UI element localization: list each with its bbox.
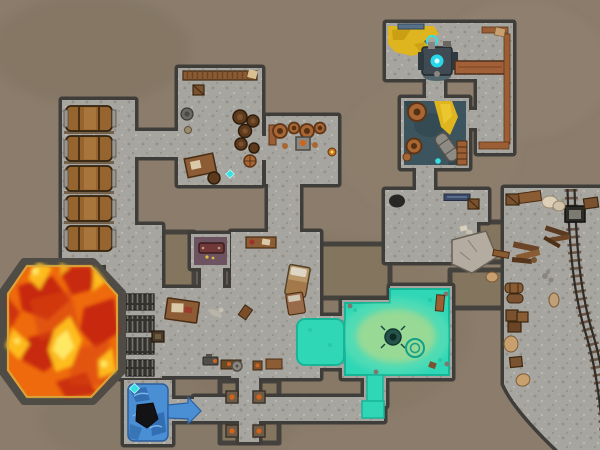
circle <box>237 114 243 120</box>
dungeon-battle-map <box>0 0 600 450</box>
rect <box>126 338 154 354</box>
rect <box>362 401 384 418</box>
circle <box>435 59 440 64</box>
circle <box>239 142 244 147</box>
side-table <box>266 359 282 369</box>
circle <box>300 140 306 146</box>
machine-room-features <box>403 101 467 165</box>
lava-pool <box>3 262 122 401</box>
rect <box>183 71 257 80</box>
jug <box>185 127 192 134</box>
rect <box>64 230 68 247</box>
acid-channel <box>297 319 344 365</box>
circle <box>213 359 217 363</box>
rect <box>112 230 116 247</box>
circle <box>256 364 260 368</box>
sack <box>549 293 559 307</box>
crate <box>508 322 521 332</box>
rect <box>64 110 68 127</box>
corridor-west <box>133 131 180 157</box>
rock <box>445 362 450 367</box>
barrel-top <box>249 143 259 153</box>
dirt-room-center <box>318 244 390 298</box>
circle <box>251 119 256 124</box>
rect <box>262 238 271 245</box>
dungeon-map-canvas <box>0 0 600 450</box>
circle <box>434 71 440 77</box>
circle <box>229 394 234 399</box>
crate <box>510 356 523 367</box>
bed <box>286 292 306 315</box>
circle <box>218 247 221 250</box>
circle <box>31 267 39 275</box>
crate <box>517 312 528 322</box>
circle <box>414 109 421 116</box>
rect <box>155 334 161 339</box>
rock <box>348 304 353 309</box>
rect <box>418 52 424 70</box>
circle <box>14 338 20 344</box>
rect <box>84 138 96 160</box>
copper-pot <box>282 143 288 149</box>
barrel-top <box>208 172 220 184</box>
circle <box>219 308 224 313</box>
circle <box>227 362 231 366</box>
corridor-ritual <box>201 266 223 292</box>
cellar-barrels <box>64 106 116 251</box>
sack <box>504 336 518 352</box>
circle <box>229 428 234 433</box>
circle <box>242 128 247 133</box>
rect <box>126 316 154 332</box>
rubble <box>542 273 548 279</box>
rubble <box>546 270 550 274</box>
sack <box>553 201 565 211</box>
circle <box>277 128 283 134</box>
circle <box>292 126 297 131</box>
circle <box>438 358 442 362</box>
circle <box>101 361 108 368</box>
crate <box>583 197 598 209</box>
rect <box>126 360 154 376</box>
rect <box>112 140 116 157</box>
circle <box>250 240 255 245</box>
copper-pot <box>403 153 411 161</box>
writing-table <box>165 298 200 323</box>
wall-shelf <box>398 24 424 29</box>
rect <box>569 210 581 219</box>
rect <box>84 168 96 190</box>
rect <box>206 354 212 357</box>
crate <box>506 310 518 321</box>
wood-floor-trim <box>504 34 510 144</box>
circle <box>328 343 332 347</box>
offering-gold <box>205 255 208 258</box>
offering-gold <box>212 257 215 260</box>
rect <box>112 170 116 187</box>
circle <box>308 328 312 332</box>
rect <box>184 306 193 313</box>
sack <box>494 27 505 37</box>
circle <box>202 247 205 250</box>
circle <box>304 128 310 134</box>
copper-pot <box>312 142 318 148</box>
rect <box>84 108 96 130</box>
circle <box>185 112 190 117</box>
rect <box>64 170 68 187</box>
circle <box>411 143 417 149</box>
sack <box>486 272 498 282</box>
circle <box>256 428 261 433</box>
rubble <box>549 278 554 283</box>
circle <box>256 394 261 399</box>
wall-ladder <box>435 295 444 312</box>
door-machine-east <box>465 110 479 128</box>
circle <box>428 298 432 302</box>
corridor-south <box>194 397 384 421</box>
rect <box>84 228 96 250</box>
ritual-room <box>194 237 227 265</box>
rect <box>428 42 435 49</box>
rect <box>84 198 96 220</box>
rect <box>64 140 68 157</box>
rect <box>112 110 116 127</box>
dirt-room-east-lower <box>450 270 507 308</box>
barrel-side <box>505 283 523 293</box>
circle <box>353 308 357 312</box>
rect <box>443 41 451 47</box>
scorch-stain <box>389 195 405 208</box>
rock <box>374 370 379 375</box>
circle <box>331 151 334 154</box>
barrel-side <box>507 294 523 303</box>
circle <box>390 334 397 341</box>
rect <box>112 200 116 217</box>
circle <box>531 257 537 263</box>
circle <box>236 365 239 368</box>
rect <box>64 200 68 217</box>
cyan-sparkle <box>435 158 441 164</box>
corridor-forge-hall <box>268 182 300 236</box>
circle <box>318 126 323 131</box>
wood-floor-trim <box>479 142 509 149</box>
rect <box>126 294 154 310</box>
rect <box>171 303 183 312</box>
